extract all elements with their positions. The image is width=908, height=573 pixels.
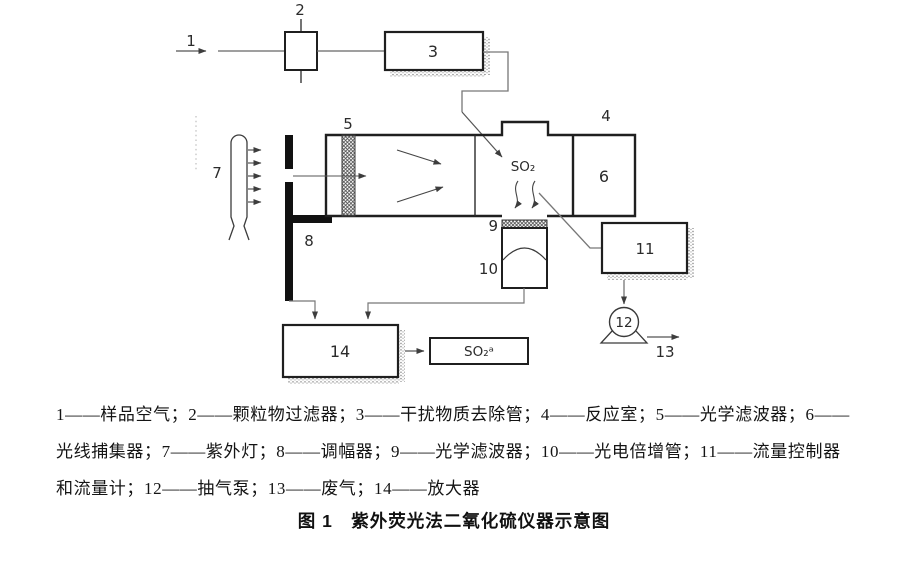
label-3: 3 xyxy=(428,42,438,61)
fluorescence-flow-wavy xyxy=(532,181,535,208)
label-7: 7 xyxy=(212,164,222,182)
amplifier-shadow-bottom xyxy=(288,378,399,384)
label-2: 2 xyxy=(295,1,305,19)
label-4: 4 xyxy=(601,107,611,125)
photomultiplier-window-arc xyxy=(503,248,546,260)
flow-controller-shadow-right xyxy=(688,228,694,278)
legend: 1——样品空气；2——颗粒物过滤器；3——干扰物质去除管；4——反应室；5——光… xyxy=(56,396,866,507)
legend-line-1: 1——样品空气；2——颗粒物过滤器；3——干扰物质去除管；4——反应室；5——光… xyxy=(56,396,866,433)
flow-controller-shadow-bottom xyxy=(607,274,688,280)
label-9: 9 xyxy=(488,217,498,235)
figure-page: 1 2 3 7 xyxy=(0,0,908,573)
legend-line-2: 光线捕集器；7——紫外灯；8——调幅器；9——光学滤波器；10——光电倍增管；1… xyxy=(56,433,866,470)
chamber-outline xyxy=(326,122,635,216)
chopper-aperture xyxy=(284,169,294,182)
outlet-to-flow-controller xyxy=(539,193,602,248)
scattered-light-arrow xyxy=(397,187,443,202)
sample-air-inlet: 1 xyxy=(176,32,285,51)
scattered-light-arrow xyxy=(397,150,441,164)
label-6: 6 xyxy=(599,167,609,186)
label-8: 8 xyxy=(304,232,314,250)
uv-lamp: 7 xyxy=(196,116,261,240)
optical-filter-9 xyxy=(502,220,547,228)
scrubber-shadow-right xyxy=(484,37,490,75)
label-14: 14 xyxy=(330,342,350,361)
instrument-schematic: 1 2 3 7 xyxy=(0,0,908,395)
so2-label: SO₂ xyxy=(511,159,536,175)
interference-scrubber: 3 xyxy=(385,32,508,157)
label-5: 5 xyxy=(343,115,353,133)
flow-controller: 11 xyxy=(602,223,694,304)
chopper-bar xyxy=(285,135,293,301)
schematic-svg: 1 2 3 7 xyxy=(0,0,908,395)
suction-pump: 12 13 xyxy=(601,308,679,362)
uv-lamp-bulb xyxy=(229,135,249,240)
photomultiplier-assembly: 9 10 xyxy=(368,217,547,319)
label-11: 11 xyxy=(635,240,654,258)
amplifier: 14 SO₂ᵃ xyxy=(283,325,528,384)
amplifier-shadow-right xyxy=(399,330,405,382)
label-13: 13 xyxy=(655,343,674,361)
label-1: 1 xyxy=(186,32,196,50)
legend-line-3: 和流量计；12——抽气泵；13——废气；14——放大器 xyxy=(56,470,866,507)
so2-output-label: SO₂ᵃ xyxy=(464,344,494,360)
photomultiplier-box xyxy=(502,228,547,288)
particulate-filter: 2 xyxy=(285,1,385,83)
scrubber-shadow-bottom xyxy=(390,71,485,77)
label-12: 12 xyxy=(615,315,632,331)
fluorescence-flow-wavy xyxy=(515,181,518,208)
particulate-filter-box xyxy=(285,32,317,70)
figure-caption: 图 1 紫外荧光法二氧化硫仪器示意图 xyxy=(0,508,908,533)
pmt-signal-line xyxy=(368,288,524,319)
reaction-chamber: 5 4 6 SO₂ xyxy=(293,107,635,248)
label-10: 10 xyxy=(479,260,498,278)
modulator-signal-line xyxy=(289,301,315,319)
